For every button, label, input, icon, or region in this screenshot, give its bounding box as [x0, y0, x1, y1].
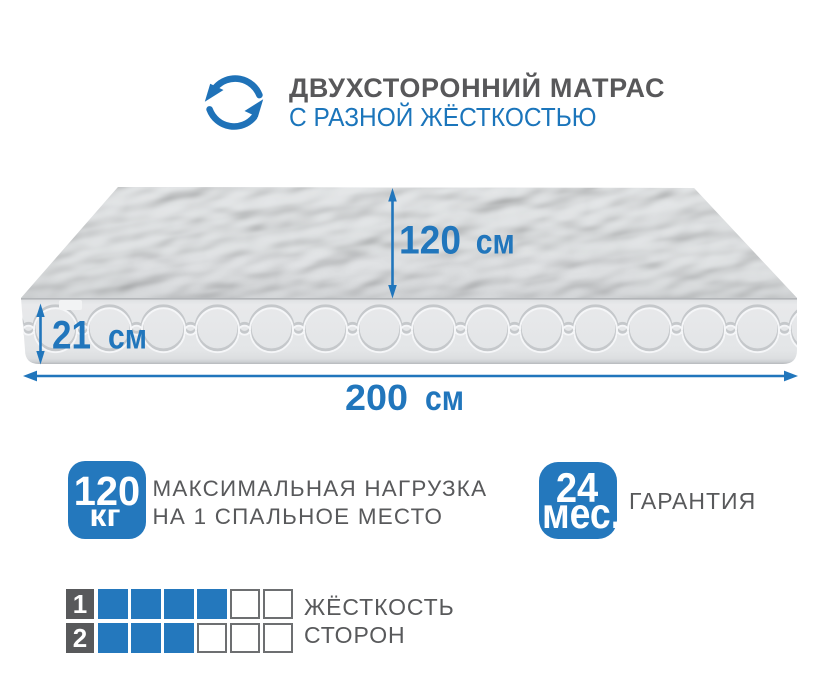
svg-text:21: 21	[52, 313, 91, 357]
svg-text:см: см	[425, 379, 464, 418]
svg-text:120: 120	[399, 219, 461, 263]
svg-text:см: см	[108, 317, 147, 356]
svg-text:200: 200	[345, 377, 408, 418]
svg-text:см: см	[476, 223, 515, 262]
